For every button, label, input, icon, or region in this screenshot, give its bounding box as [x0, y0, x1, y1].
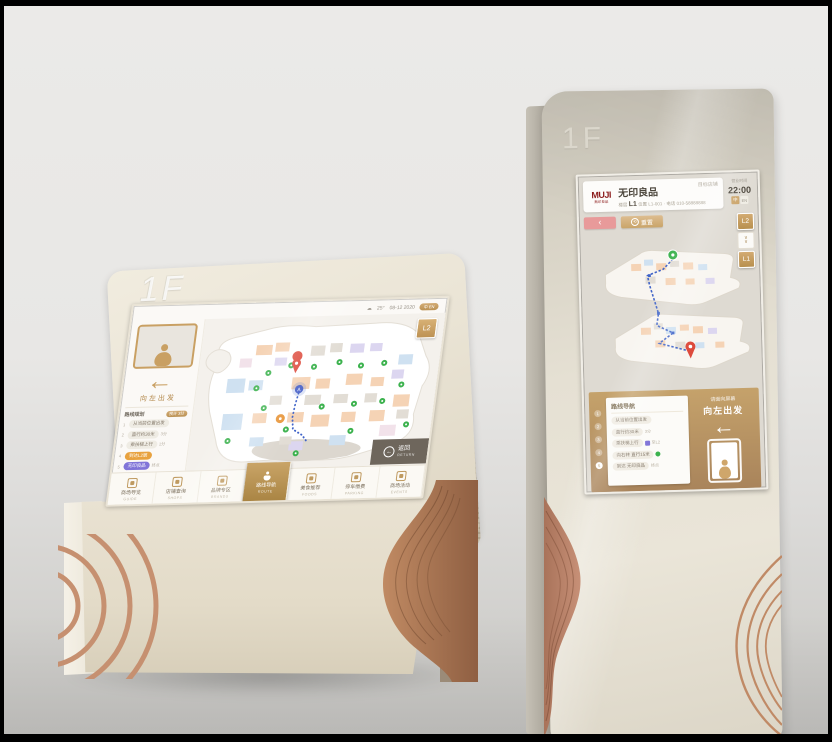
tab-route-nav-active[interactable]: 路线导航 ROUTE: [242, 462, 292, 502]
floor-button-upper[interactable]: L2: [737, 213, 754, 230]
language-toggle[interactable]: 中 EN: [419, 303, 439, 311]
guide-photo: [132, 323, 198, 369]
lang-en-button[interactable]: EN: [740, 196, 748, 204]
refresh-icon: ⟲: [631, 218, 639, 226]
temperature: 25°: [377, 305, 385, 311]
right-kiosk-floor-label: 1F: [562, 122, 606, 157]
floor-switcher: L2 ∨∨ L1: [737, 213, 756, 268]
direction-panel: 请面向屏幕 向左出发 ←: [692, 394, 756, 484]
route-step[interactable]: 向右转 直行15米: [612, 449, 684, 459]
person-icon: [716, 454, 733, 478]
destination-card: 目标店铺 MUJI 無印良品 无印良品 楼层 L1 位置 L1-001 · 电话…: [583, 178, 724, 213]
route-step[interactable]: 乘扶梯上行 至L2: [612, 438, 684, 448]
muji-logo: MUJI 無印良品: [588, 187, 615, 208]
target-store-label: 目标店铺: [698, 181, 718, 189]
tab-icon: [216, 475, 227, 485]
tab-icon: [396, 470, 407, 480]
left-arrow-icon: ←: [127, 367, 193, 393]
tab-brands[interactable]: 品牌专区 BRANDS: [197, 470, 246, 503]
route-step[interactable]: 5 无印良品 终点: [117, 461, 181, 471]
bottom-navigation: ← 返回 RETURN 商场导览 GUIDE 店铺查询 SHOPS 品牌专: [107, 464, 425, 505]
left-kiosk: 1F ☁ 25° 08-12 2020 中 EN ← 向左出发 路线规划: [56, 244, 486, 694]
copper-contour-decor: [652, 548, 782, 734]
tab-food[interactable]: 美食推荐 FOODS: [287, 468, 336, 501]
route-step-list: 路线导航 从当前位置出发 直行约30米 3分 乘扶梯上行 至L2: [606, 396, 690, 486]
store-name: 无印良品: [618, 182, 706, 199]
tab-icon: [306, 473, 317, 483]
back-button[interactable]: ‹: [584, 217, 616, 230]
copper-wave-decor: [356, 480, 478, 682]
right-kiosk: 1F 目标店铺: [516, 82, 791, 734]
copper-arc-decor: [58, 534, 208, 679]
plan-badge: 预计 3分: [166, 410, 188, 417]
return-button[interactable]: ← 返回 RETURN: [370, 438, 429, 465]
start-marker: [668, 250, 678, 260]
route-step[interactable]: 2 直行约30米 3分: [121, 429, 185, 439]
reset-route-button[interactable]: ⟲ 重置: [621, 215, 663, 228]
tab-shop-search[interactable]: 店铺查询 SHOPS: [152, 471, 201, 504]
hours-block: 营业时间 22:00 中 EN: [726, 177, 754, 209]
floor-button-lower[interactable]: L1: [738, 251, 755, 268]
route-step[interactable]: 4 到达L2层: [118, 450, 182, 460]
tab-icon: [351, 472, 362, 482]
direction-text: 向左出发: [126, 393, 190, 405]
route-list-title: 路线导航: [611, 400, 683, 414]
route-step[interactable]: 从当前位置出发: [611, 415, 683, 425]
escalator-icon: [645, 440, 650, 445]
hours-label: 营业时间: [731, 178, 747, 184]
copper-wave-decor: [544, 497, 608, 734]
route-step[interactable]: 3 乘扶梯上行 1分: [120, 440, 184, 450]
weather-icon: ☁: [367, 305, 373, 311]
right-kiosk-screen: 目标店铺 MUJI 無印良品 无印良品 楼层 L1 位置 L1-001 · 电话…: [576, 169, 769, 494]
person-icon: [151, 340, 176, 367]
left-kiosk-screen: ☁ 25° 08-12 2020 中 EN ← 向左出发 路线规划 预计 3分: [105, 296, 450, 507]
person-icon: [262, 470, 272, 480]
return-arrow-icon: ←: [383, 446, 395, 457]
stacked-floorplans[interactable]: [584, 227, 758, 390]
door-graphic: [707, 438, 742, 483]
chevron-down-icon[interactable]: ∨∨: [737, 232, 754, 249]
tab-parking[interactable]: 停车缴费 PARKING: [332, 467, 381, 500]
plan-title: 路线规划: [124, 411, 145, 419]
route-bottom-section: 1 2 3 4 5 路线导航 从当前位置出发 直行约30米 3分: [589, 388, 762, 493]
tab-icon: [127, 477, 138, 487]
checkpoint-icon: [656, 451, 661, 456]
tab-events[interactable]: 商场活动 EVENTS: [377, 465, 426, 498]
studio-scene: 1F ☁ 25° 08-12 2020 中 EN ← 向左出发 路线规划: [4, 6, 828, 734]
tab-icon: [172, 476, 183, 486]
lang-cn-button[interactable]: 中: [731, 196, 739, 204]
route-step[interactable]: 直行约30米 3分: [612, 426, 684, 436]
store-meta: 楼层 L1 位置 L1-001 · 电话 010-58888888: [618, 199, 705, 208]
route-step[interactable]: 1 从当前位置出发: [123, 419, 187, 429]
left-arrow-icon: ←: [712, 416, 735, 437]
route-step[interactable]: 到达 无印良品 终点: [613, 461, 685, 471]
floor-lower: [614, 312, 750, 371]
tab-mall-guide[interactable]: 商场导览 GUIDE: [107, 472, 156, 505]
closing-time: 22:00: [728, 185, 751, 196]
date: 08-12 2020: [389, 304, 415, 311]
floor-button[interactable]: L2: [415, 318, 438, 339]
render-stage: 1F ☁ 25° 08-12 2020 中 EN ← 向左出发 路线规划: [0, 0, 832, 742]
step-number-strip: 1 2 3 4 5: [594, 398, 604, 486]
multi-floor-map[interactable]: L2 ∨∨ L1: [584, 227, 758, 390]
direction-hint: 请面向屏幕: [710, 395, 735, 403]
